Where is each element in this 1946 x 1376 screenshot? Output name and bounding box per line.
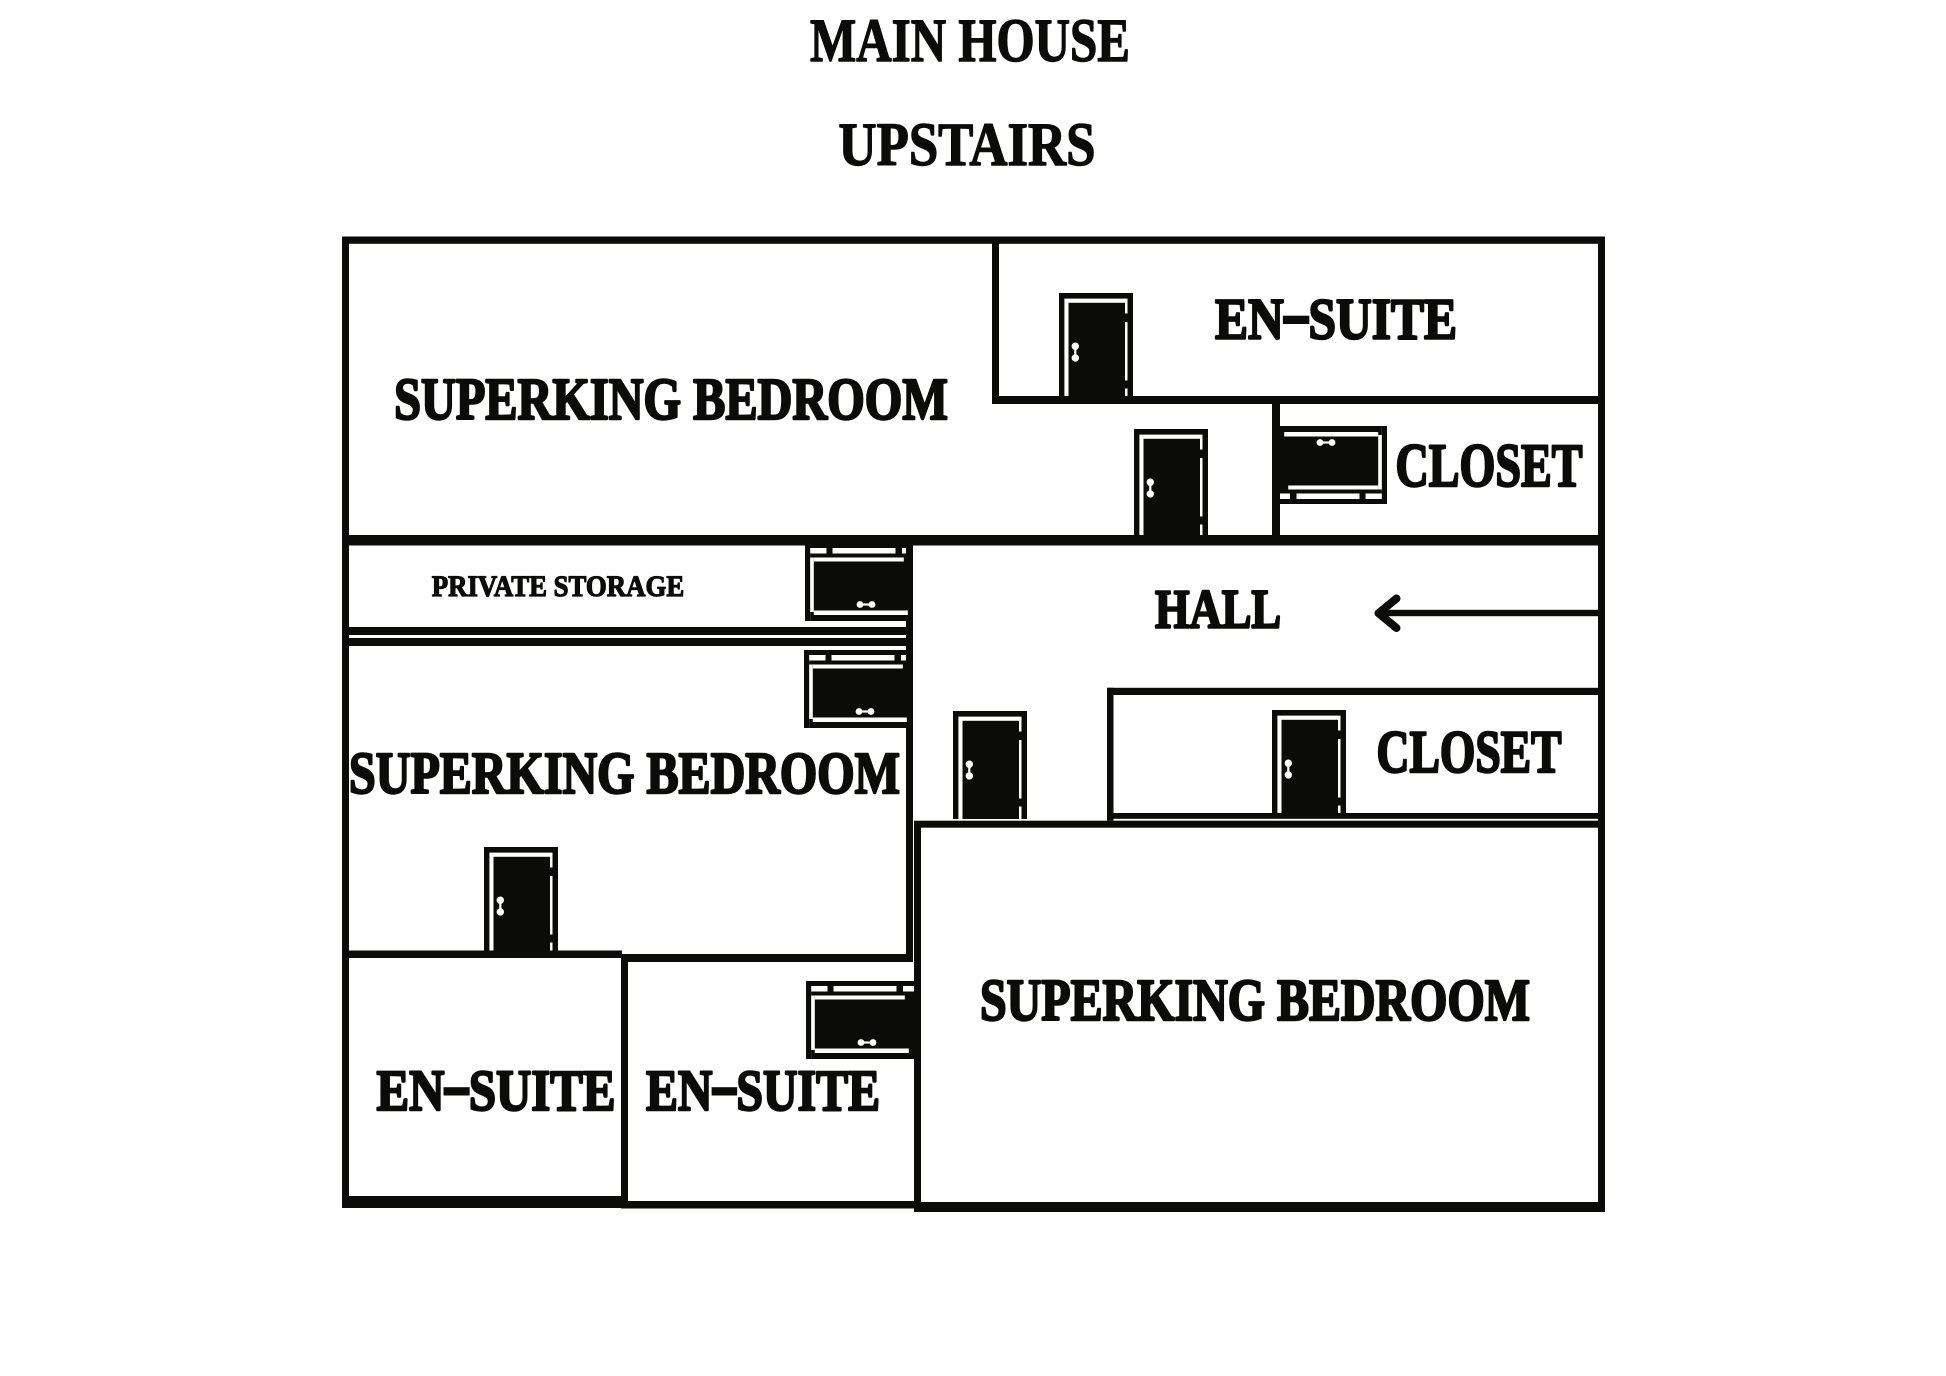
svg-text:CLOSET: CLOSET (1396, 432, 1583, 500)
svg-text:EN SUITE: EN SUITE (646, 1060, 880, 1123)
svg-text:SUPERKING BEDROOM: SUPERKING BEDROOM (394, 366, 948, 432)
svg-text:SUPERKING BEDROOM: SUPERKING BEDROOM (349, 740, 900, 806)
svg-text:PRIVATE STORAGE: PRIVATE STORAGE (432, 571, 684, 604)
svg-text:EN SUITE: EN SUITE (377, 1058, 616, 1123)
svg-text:HALL: HALL (1155, 578, 1281, 640)
svg-text:EN SUITE: EN SUITE (1215, 287, 1457, 352)
svg-text:UPSTAIRS: UPSTAIRS (839, 112, 1096, 179)
svg-text:SUPERKING BEDROOM: SUPERKING BEDROOM (980, 967, 1530, 1033)
svg-text:CLOSET: CLOSET (1377, 719, 1562, 785)
svg-text:MAIN HOUSE: MAIN HOUSE (810, 7, 1130, 74)
